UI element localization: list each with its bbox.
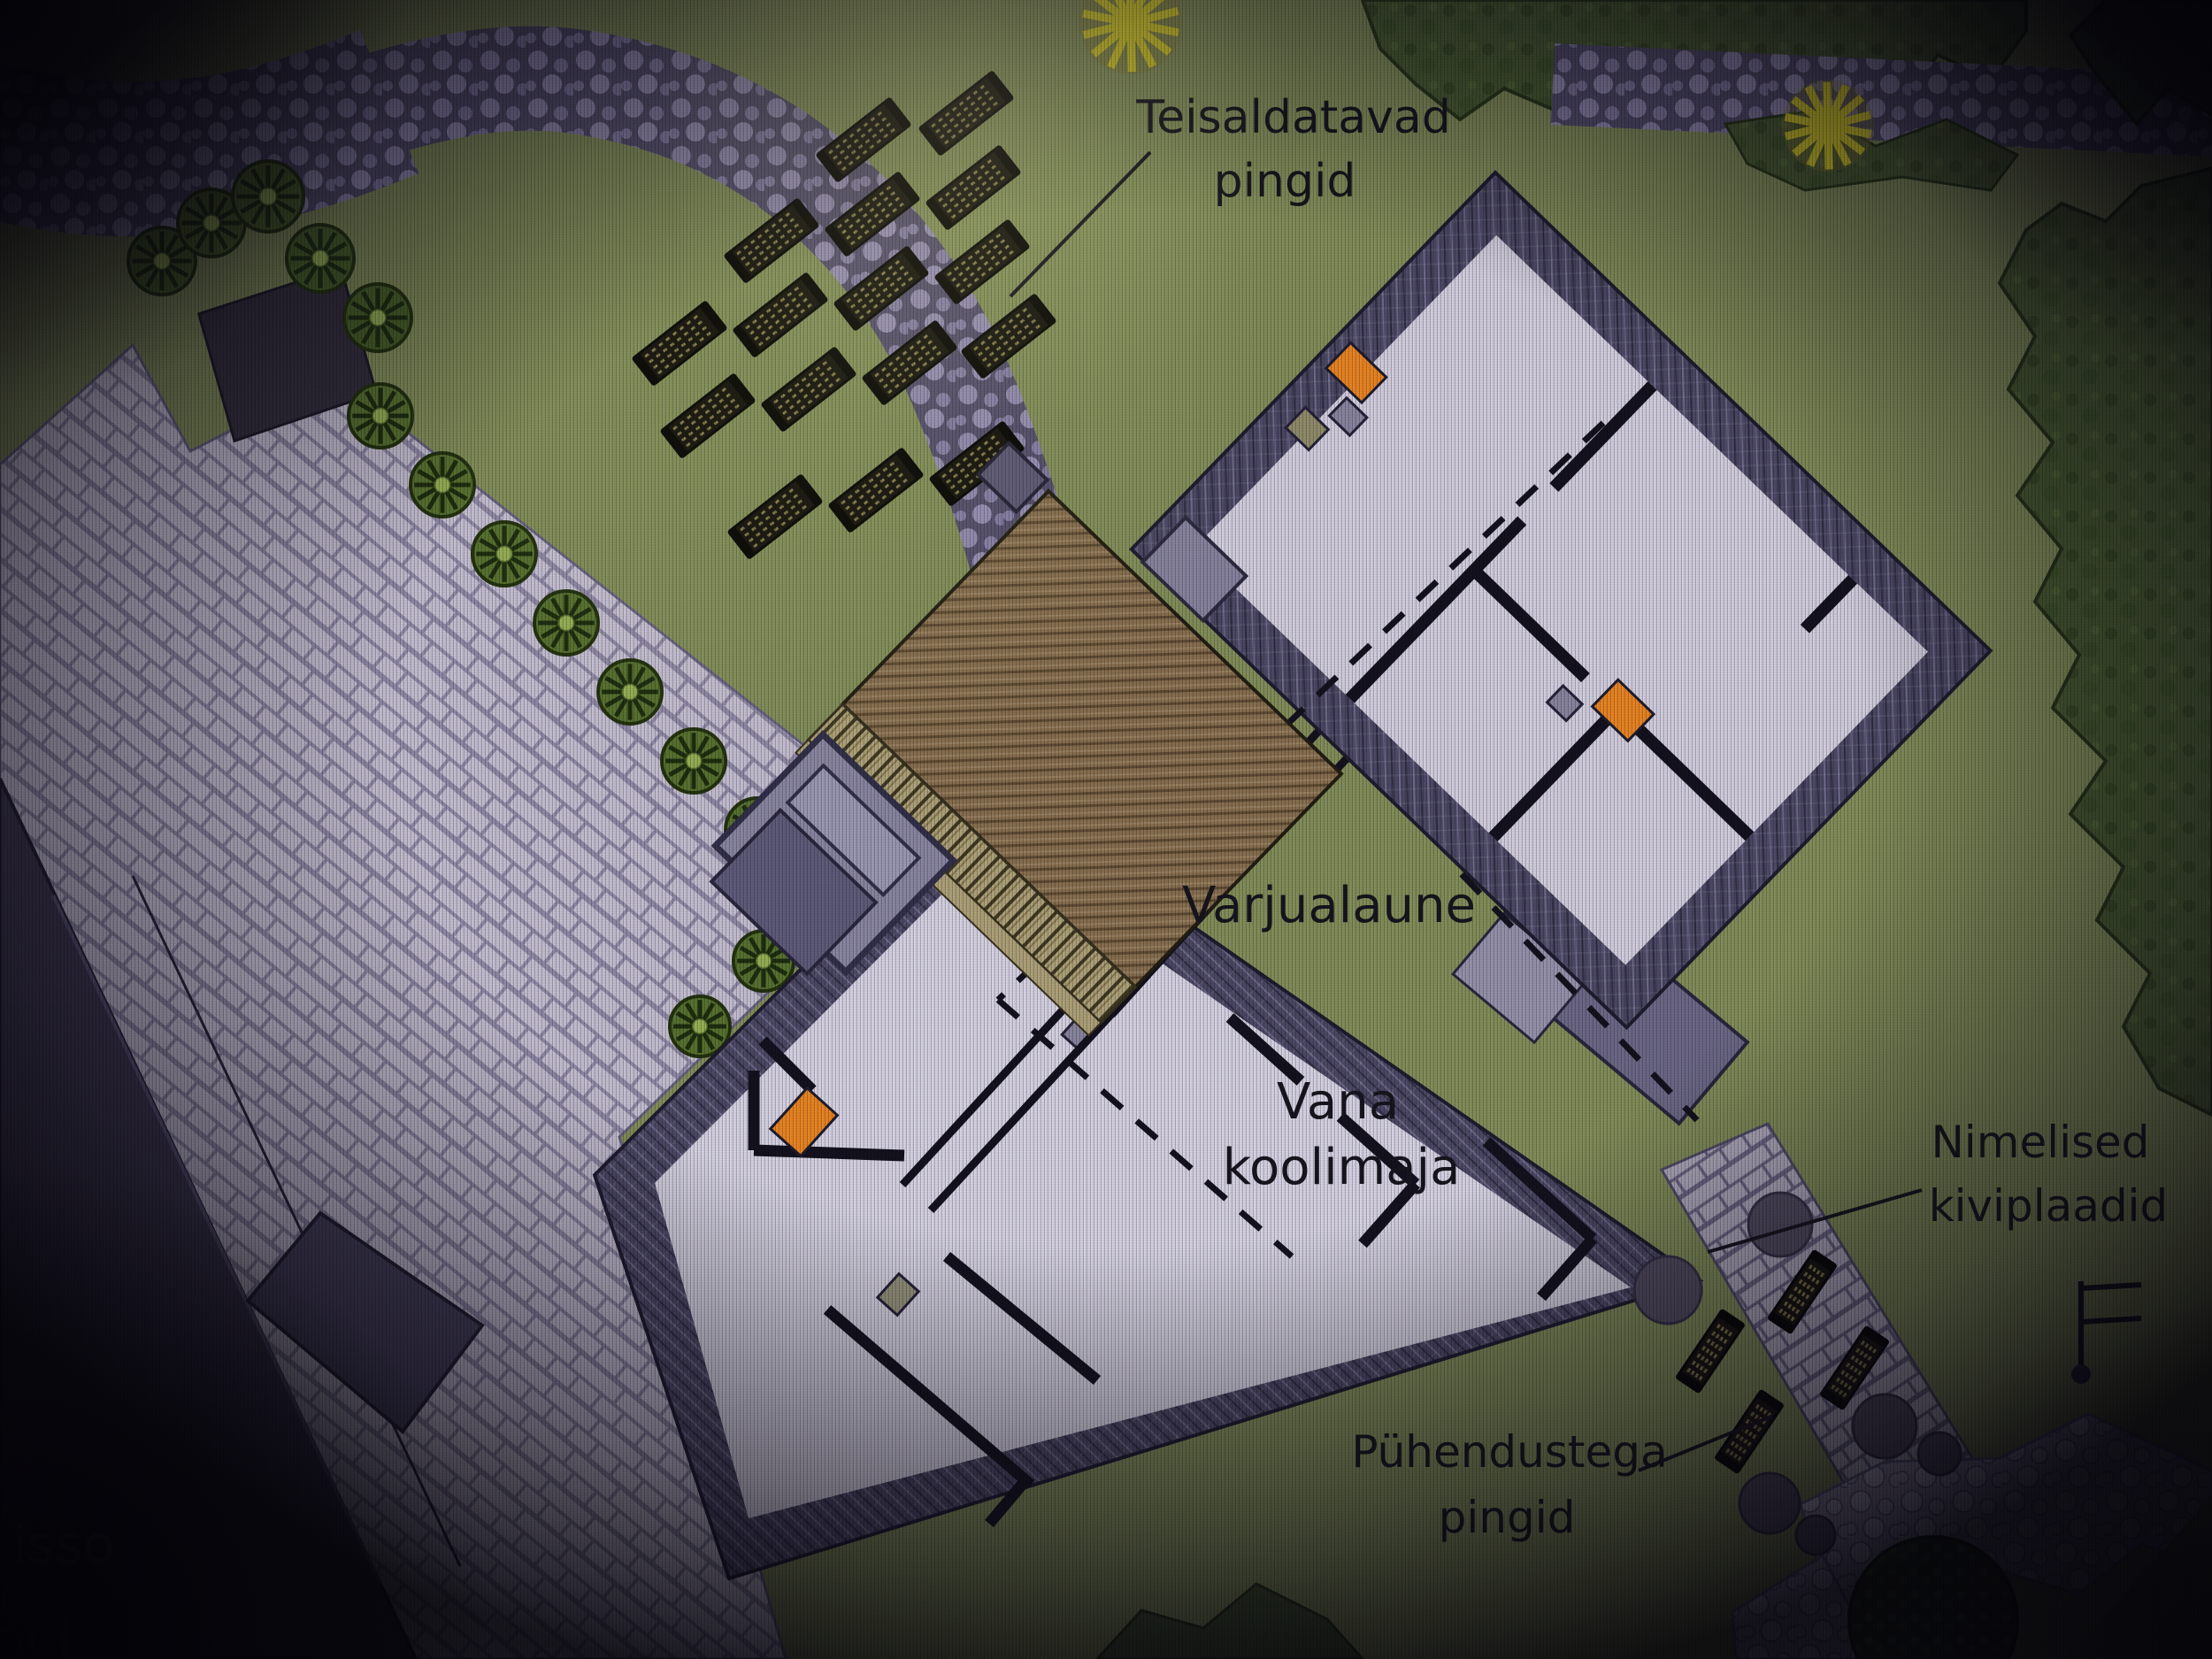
yellow-tree-icon (1782, 80, 1874, 172)
label-teisaldatavad-2: pingid (1214, 155, 1356, 208)
label-kiviplaadid: kiviplaadid (1929, 1180, 2169, 1232)
label-puhendustega: Pühendustega (1351, 1426, 1667, 1478)
label-varjualaune: Varjualaune (1182, 877, 1476, 934)
round-tree-icon (1918, 1432, 1961, 1475)
tree-icon (344, 284, 411, 351)
round-tree-icon (1740, 1473, 1800, 1533)
label-building-partial-2: ool (0, 1608, 73, 1659)
round-tree-icon (1853, 1394, 1916, 1458)
tree-icon (233, 161, 303, 232)
tree-icon (472, 522, 536, 586)
label-nimelised: Nimelised (1931, 1117, 2149, 1168)
label-puhendustega-2: pingid (1439, 1492, 1576, 1543)
tree-icon (411, 453, 474, 517)
tree-icon (287, 225, 354, 292)
round-tree-icon (1796, 1516, 1835, 1555)
round-tree-icon (1634, 1256, 1701, 1324)
tree-icon (662, 729, 726, 793)
label-building-partial-1: isso (12, 1514, 115, 1576)
tree-icon (534, 591, 598, 655)
tree-icon (598, 660, 662, 724)
label-vana: Vana (1277, 1073, 1399, 1131)
site-plan-photo: Teisaldatavad pingid Varjualaune Vana ko… (0, 0, 2212, 1659)
label-teisaldatavad: Teisaldatavad (1135, 91, 1451, 144)
tree-icon (349, 384, 412, 448)
label-koolimaja: koolimaja (1223, 1139, 1461, 1196)
